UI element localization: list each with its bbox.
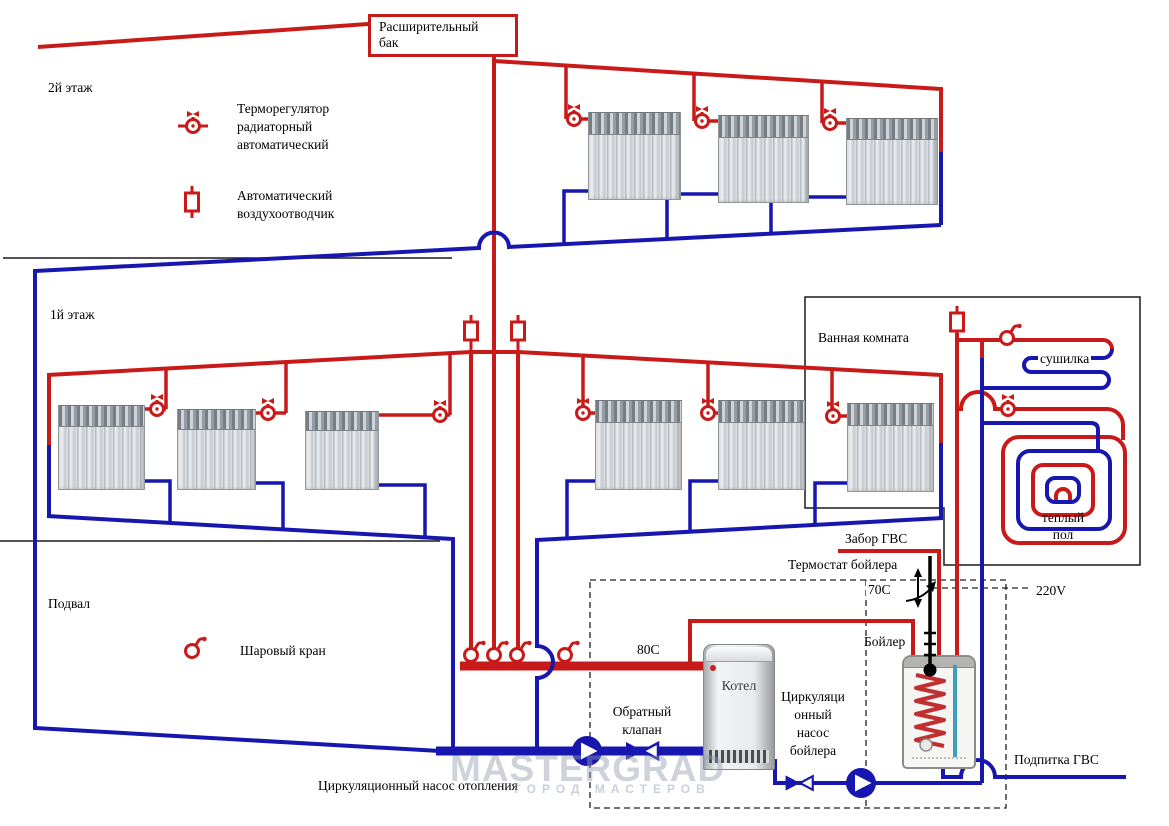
floor-separator-lines <box>0 258 452 541</box>
supply-pipes <box>38 24 1125 666</box>
thermostat-label: Термостат бойлера <box>788 556 897 574</box>
radiator <box>305 411 379 490</box>
dhw-draw-label: Забор ГВС <box>845 530 907 548</box>
indirect-water-heater <box>902 655 976 769</box>
radiator <box>846 118 938 205</box>
dhw-makeup-label: Подпитка ГВС <box>1014 751 1099 769</box>
boiler-tank-label: Бойлер <box>864 633 905 651</box>
piping-layer <box>0 0 1169 826</box>
floor1-label: 1й этаж <box>50 306 95 324</box>
temp-70-label: 70C <box>866 581 893 599</box>
dryer-label: сушилка <box>1038 350 1091 368</box>
legend-thermo-valve-label: Терморегулятор радиаторный автоматически… <box>237 100 329 154</box>
radiator <box>588 112 681 200</box>
boiler-cap <box>706 647 772 662</box>
ball-valve-icon <box>465 324 1022 662</box>
heating-scheme-diagram: Котел Расширительный бак 2й этаж 1й этаж… <box>0 0 1169 826</box>
voltage-label: 220V <box>1036 582 1066 600</box>
boiler-burner-indicator <box>710 665 716 671</box>
legend-air-vent-label: Автоматический воздухоотводчик <box>237 187 334 223</box>
basement-label: Подвал <box>48 595 90 613</box>
radiator <box>847 403 934 492</box>
boiler-pump-label: Циркуляци онный насос бойлера <box>776 688 850 760</box>
thermostat-overlay <box>0 0 1169 826</box>
floor2-label: 2й этаж <box>48 79 93 97</box>
watermark-sub: ГОРОД МАСТЕРОВ <box>514 782 711 796</box>
radiator <box>718 400 805 490</box>
expansion-tank: Расширительный бак <box>368 14 518 57</box>
expansion-tank-label: Расширительный бак <box>379 19 478 50</box>
radiator <box>595 400 682 490</box>
radiator <box>718 115 809 203</box>
legend-ball-valve-label: Шаровый кран <box>240 642 326 660</box>
legend-ball-valve-icon <box>186 637 207 658</box>
warm-floor-label: теплый пол <box>1030 509 1096 543</box>
bathroom-label: Ванная комната <box>818 329 909 347</box>
radiator <box>177 409 256 490</box>
check-valve-label: Обратный клапан <box>596 703 688 739</box>
legend-thermo-valve-icon <box>178 111 208 133</box>
legend-air-vent-icon <box>186 186 199 218</box>
temp-80-label: 80C <box>637 641 660 659</box>
boiler-label: Котел <box>704 679 774 695</box>
radiator <box>58 405 145 490</box>
tank-coil <box>904 657 974 767</box>
